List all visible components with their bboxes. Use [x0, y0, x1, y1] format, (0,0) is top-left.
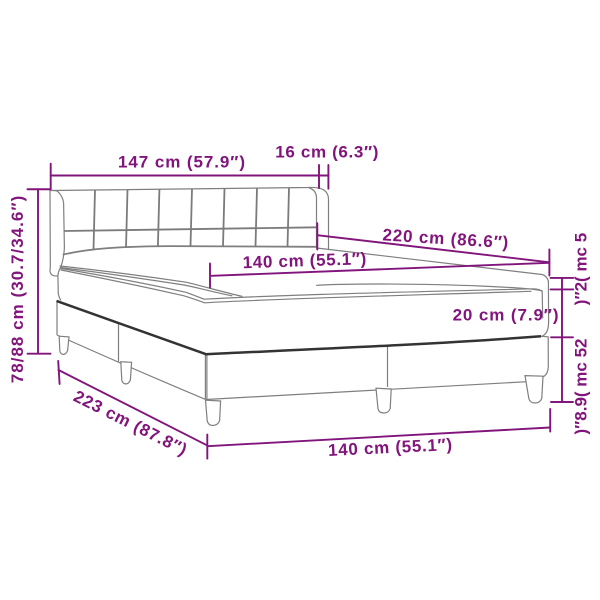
svg-text:)″2( mc 5: )″2( mc 5 [572, 233, 591, 305]
svg-text:16 cm (6.3″): 16 cm (6.3″) [275, 142, 379, 161]
svg-text:20 cm (7.9″): 20 cm (7.9″) [453, 306, 560, 325]
svg-text:147 cm (57.9″): 147 cm (57.9″) [118, 152, 246, 171]
svg-text:78/88 cm (30.7/34.6″): 78/88 cm (30.7/34.6″) [8, 195, 27, 384]
svg-text:)″8.9( mc 52: )″8.9( mc 52 [572, 338, 591, 434]
